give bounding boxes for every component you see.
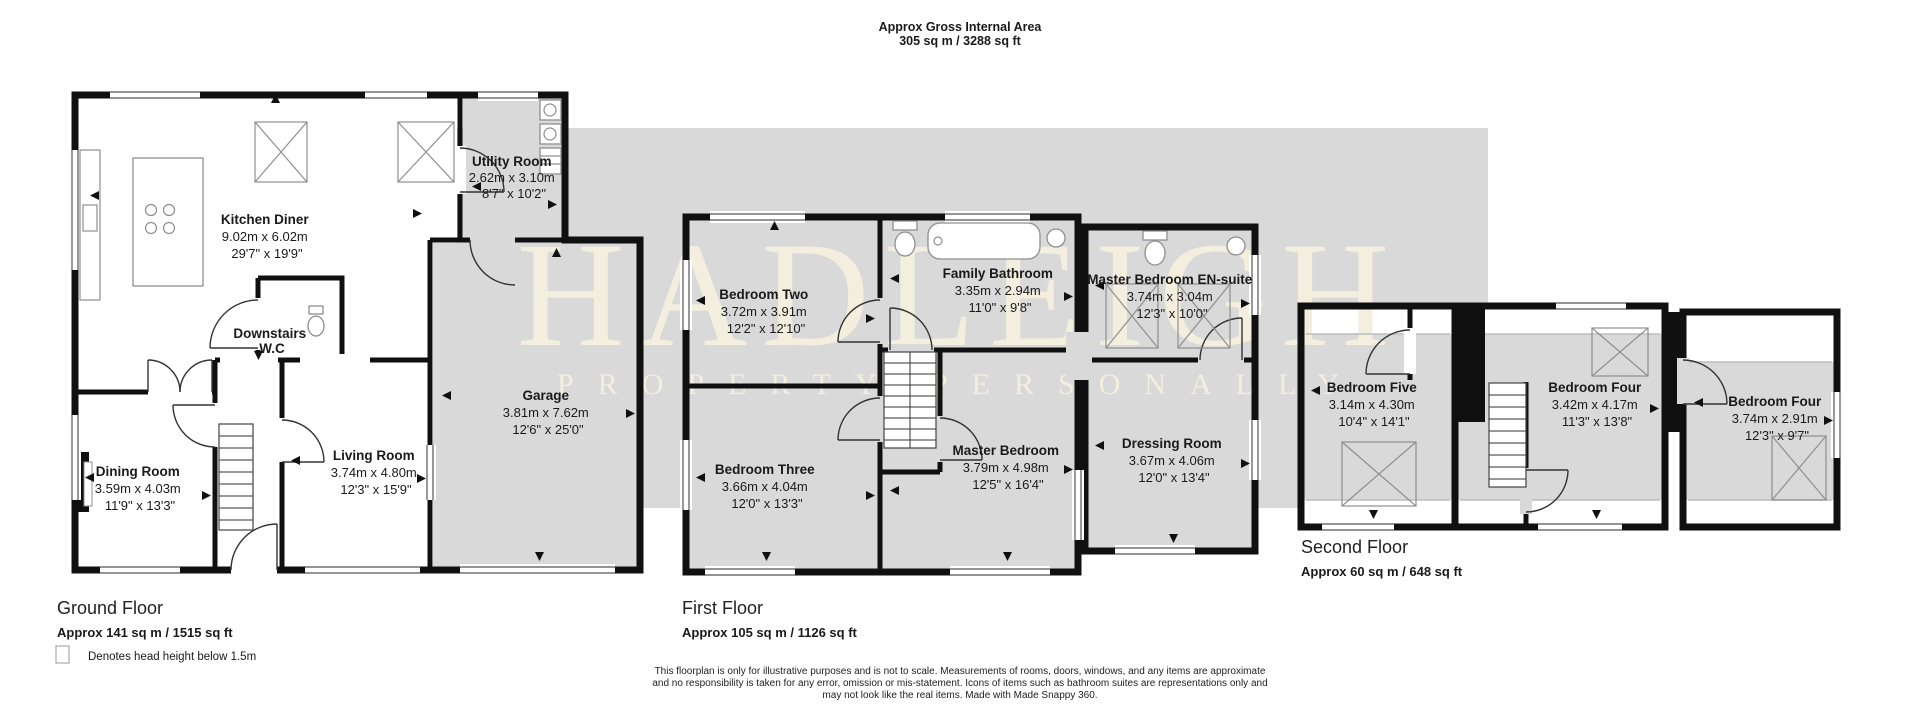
ensuite-toilet-icon	[1143, 231, 1167, 265]
stairs-second	[1489, 383, 1526, 487]
disclaimer-line-1: This floorplan is only for illustrative …	[655, 666, 1266, 677]
floorplan-canvas: HADLEIGH PROPERTY PERSONALLY	[0, 0, 1920, 710]
head-height-legend: Denotes head height below 1.5m	[56, 646, 256, 663]
room-label-living-room: Living Room 3.74m x 4.80m 12'3" x 15'9"	[331, 447, 421, 497]
disclaimer-line-2: and no responsibility is taken for any e…	[652, 678, 1267, 689]
head-height-legend-text: Denotes head height below 1.5m	[88, 651, 256, 663]
bathroom-toilet-icon	[893, 221, 917, 256]
gross-area-title: Approx Gross Internal Area	[879, 20, 1043, 34]
ensuite-sink-icon	[1227, 237, 1245, 255]
stairs-first	[884, 352, 936, 448]
ground-floor-title: Ground Floor	[57, 598, 163, 618]
watermark-tagline-text: PROPERTY PERSONALLY	[557, 368, 1363, 401]
first-floor-title: First Floor	[682, 598, 763, 618]
head-height-swatch-icon	[56, 646, 69, 663]
bathroom-sink-icon	[1047, 229, 1065, 247]
second-floor-area: Approx 60 sq m / 648 sq ft	[1301, 564, 1463, 579]
second-floor-title: Second Floor	[1301, 537, 1408, 557]
room-label-bedroom-two: Bedroom Two 3.72m x 3.91m 12'2" x 12'10"	[719, 286, 812, 336]
room-label-dining-room: Dining Room 3.59m x 4.03m 11'9" x 13'3"	[95, 463, 185, 513]
disclaimer-line-3: may not look like the real items. Made w…	[822, 690, 1097, 701]
ground-floor-area: Approx 141 sq m / 1515 sq ft	[57, 625, 233, 640]
floorplan-page: HADLEIGH PROPERTY PERSONALLY	[0, 0, 1920, 710]
stairs-ground	[219, 424, 253, 530]
kitchen-island-icon	[133, 158, 203, 286]
bath-icon	[928, 223, 1040, 259]
gross-area-value: 305 sq m / 3288 sq ft	[899, 34, 1021, 48]
room-label-bedroom-four-middle: Bedroom Four 3.42m x 4.17m 11'3" x 13'8"	[1548, 379, 1645, 429]
room-label-bedroom-five: Bedroom Five 3.14m x 4.30m 10'4" x 14'1"	[1327, 379, 1421, 429]
first-floor-area: Approx 105 sq m / 1126 sq ft	[682, 625, 858, 640]
room-label-utility-room: Utility Room 2.62m x 3.10m 8'7" x 10'2"	[469, 153, 559, 201]
room-label-kitchen-diner: Kitchen Diner 9.02m x 6.02m 29'7" x 19'9…	[221, 211, 313, 261]
